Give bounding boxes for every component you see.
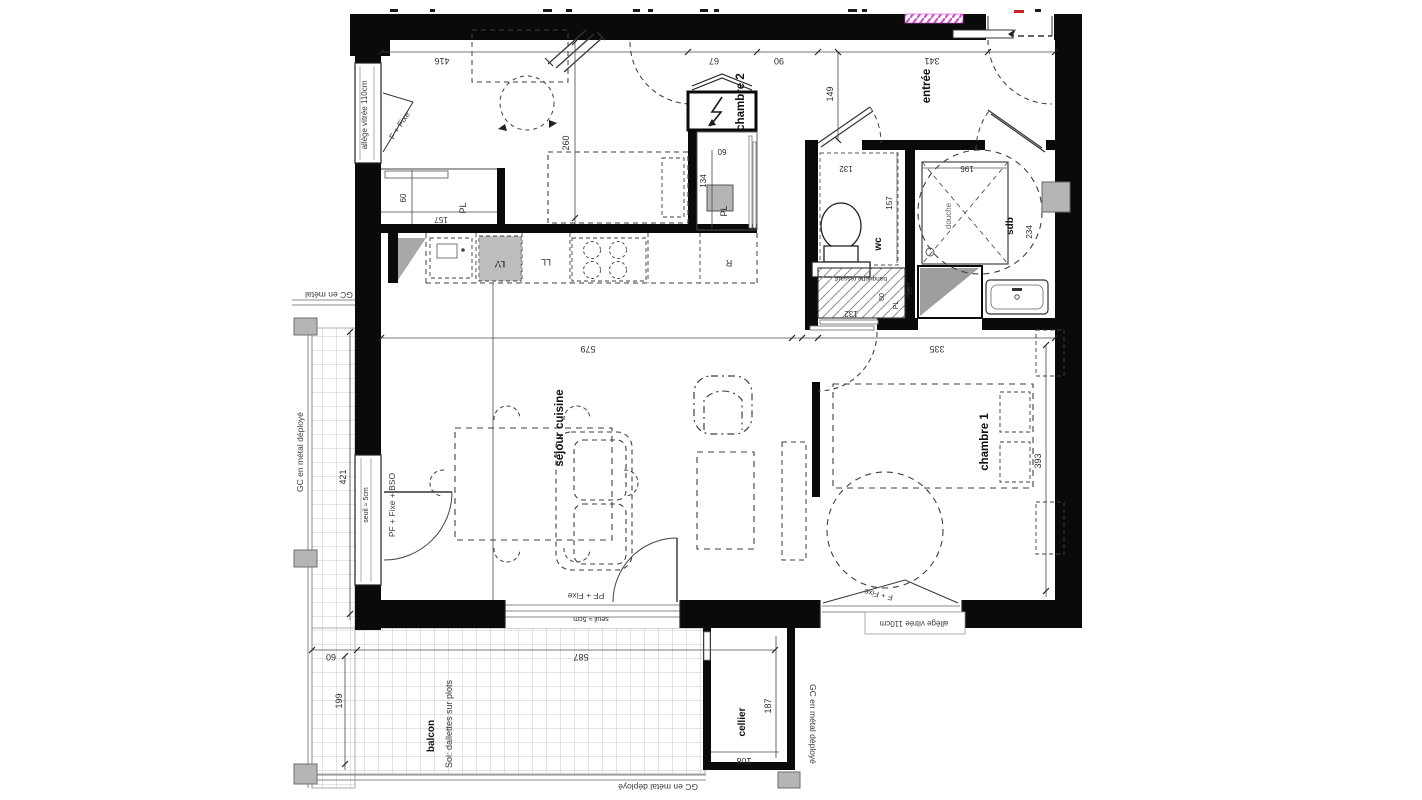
tv-unit: [782, 442, 806, 560]
closet-entree-door1: [749, 136, 752, 228]
kitchen-shaft-wall: [388, 233, 398, 283]
dim-341: 341: [924, 56, 939, 66]
dim-260: 260: [561, 135, 571, 150]
label-allege-left: allège vitrée 110cm: [360, 80, 369, 149]
vanity-icon: [986, 280, 1048, 314]
label-banquette: banquette ressaut: [835, 275, 887, 282]
kitchen: [388, 233, 757, 283]
dim-187: 187: [763, 698, 773, 713]
dim-416: 416: [434, 56, 449, 66]
floor-plan-page: chambre 2 chambre 1 entrée wc sdb séjour…: [0, 0, 1422, 800]
bed-pillow: [1000, 392, 1030, 432]
balcony-post: [294, 318, 317, 335]
wall-wc-left: [805, 140, 818, 330]
wall-chambre1-west-stub: [812, 382, 820, 497]
wall-closet2-right: [497, 168, 505, 226]
sejour-furniture: [430, 376, 806, 570]
cellier-floor: [703, 628, 795, 770]
dim-90: 90: [774, 56, 784, 66]
toilet-icon: [812, 203, 870, 277]
label-sejour: séjour cuisine: [554, 389, 566, 466]
cooktop-burners: [584, 242, 627, 279]
wall-sdb-top: [915, 140, 985, 150]
turning-circle-chambre1: [827, 472, 943, 588]
red-mark: [1014, 10, 1024, 13]
shower-diagonals: [922, 162, 1008, 264]
turning-circle-chambre2: [500, 76, 554, 130]
label-douche: douche: [944, 202, 953, 229]
closet-entree-door2: [753, 142, 756, 228]
label-entree: entrée: [921, 69, 933, 104]
bed-chambre2-pillow: [662, 158, 684, 217]
label-sdb: sdb: [1005, 217, 1016, 235]
label-pl-entree: PL: [719, 205, 729, 216]
label-chambre1: chambre 1: [979, 413, 991, 471]
dim-195: 195: [960, 164, 974, 173]
dim-60-balcon: 60: [326, 652, 336, 662]
dim-60-pl: 60: [717, 147, 726, 156]
balcony-post: [294, 550, 317, 567]
dim-134: 134: [699, 174, 708, 188]
balcony-post: [778, 772, 800, 788]
chairs: [430, 406, 638, 562]
dim-25: 25: [907, 287, 914, 295]
chambre1-door-swing: [818, 332, 877, 391]
chambre1-contents: [818, 330, 1064, 588]
dim-335: 335: [929, 344, 944, 354]
label-gc-deploye-right: GC en métal déployé: [808, 684, 818, 764]
label-ll: LL: [541, 257, 551, 267]
label-fridge: R: [725, 258, 732, 268]
label-cellier: cellier: [737, 707, 748, 736]
kitchen-shaft-gray: [398, 238, 426, 280]
sink-bowl: [437, 244, 457, 258]
window-sejour-bottom: [505, 600, 680, 628]
cellier-room: [703, 628, 795, 770]
wall-bottom: [355, 600, 1082, 628]
balcony-post: [294, 764, 317, 784]
wc-room: [812, 107, 898, 277]
turning-circle-sdb: [918, 150, 1042, 274]
label-f-fixe-left: F + Fixe: [387, 109, 412, 141]
bed-chambre2: [548, 152, 688, 223]
dim-108: 108: [736, 756, 751, 766]
dim-579: 579: [580, 344, 595, 354]
label-pf-fixe-bottom: PF + Fixe: [567, 591, 604, 601]
dim-132-hatch: 132: [844, 309, 858, 318]
coffee-table: [697, 452, 754, 549]
wall-kitchen-north: [381, 224, 757, 233]
dim-157-closet: 157: [434, 215, 448, 224]
label-wc: wc: [873, 237, 884, 252]
cellier-wall-right: [787, 628, 795, 770]
chambre2-contents: [381, 30, 692, 223]
dim-67: 67: [709, 56, 719, 66]
dim-60-closet: 60: [399, 193, 408, 202]
label-pl-chambre2: PL: [458, 202, 468, 213]
label-seuil-bottom: seuil ≈ 5cm: [573, 615, 609, 622]
dim-157-wc: 157: [885, 196, 894, 210]
cropped-text-marks: [390, 9, 1041, 12]
sofa-icon: [556, 432, 632, 570]
wall-north-chambre1: [982, 318, 1082, 330]
faucet-dot: [461, 248, 465, 252]
bed-pillow: [1000, 442, 1030, 482]
entry-door-swing: [988, 40, 1052, 104]
dim-421: 421: [338, 469, 348, 484]
wall-closet-entree-left: [688, 130, 697, 232]
floor-plan-drawing: chambre 2 chambre 1 entrée wc sdb séjour…: [0, 0, 1422, 800]
dim-234: 234: [1025, 225, 1034, 239]
label-balcon: balcon: [426, 720, 437, 752]
label-sol-dallettes: Sol: dallettes sur plots: [444, 679, 454, 768]
label-lv: LV: [495, 259, 505, 269]
wall-sdb-top-right: [1046, 140, 1055, 150]
sliding-door-bar1: [820, 320, 878, 324]
armchair-icon: [694, 376, 752, 434]
bed-chambre1: [833, 384, 1033, 488]
wall-wc-sdb: [905, 148, 915, 330]
label-seuil-left: seuil ≈ 5cm: [363, 487, 370, 523]
label-gc-metal: GC en métal: [305, 290, 353, 300]
sdb-door-leaf: [988, 110, 1045, 152]
column-gray: [1042, 182, 1070, 212]
label-f-fixe-bottom: F + Fixe: [863, 587, 894, 602]
closet2-shelf: [385, 171, 448, 178]
dishwasher-icon: [479, 236, 521, 281]
cellier-door: [704, 632, 710, 660]
dim-199: 199: [334, 693, 344, 708]
entry-mat: [953, 30, 1013, 38]
dim-149: 149: [825, 86, 835, 101]
label-pl-hatch: PL: [893, 301, 900, 310]
dim-60-hatch: 60: [879, 293, 886, 301]
chambre2-door-swing: [630, 42, 692, 104]
dim-393: 393: [1033, 453, 1043, 468]
balcony-door-swing-bottom: [613, 538, 677, 602]
wall-south-wc: [877, 318, 918, 330]
label-chambre2: chambre 2: [735, 73, 747, 131]
dim-587: 587: [573, 652, 588, 662]
balcony-railing-bottom: [312, 775, 706, 780]
pink-hatch-strip: [905, 14, 963, 23]
dim-132-wc: 132: [839, 164, 853, 173]
sliding-door-bar2: [810, 326, 874, 330]
label-gc-deploye-bottom: GC en métal déployé: [618, 782, 698, 792]
cooktop-icon: [572, 238, 646, 281]
label-allege-bottom: allège vitrée 110cm: [879, 619, 948, 628]
label-gc-deploye-left: GC en métal déployé: [295, 412, 305, 492]
label-pf-fixe-bso: PF + Fixe + BSO: [387, 472, 397, 537]
dining-table: [455, 428, 612, 540]
